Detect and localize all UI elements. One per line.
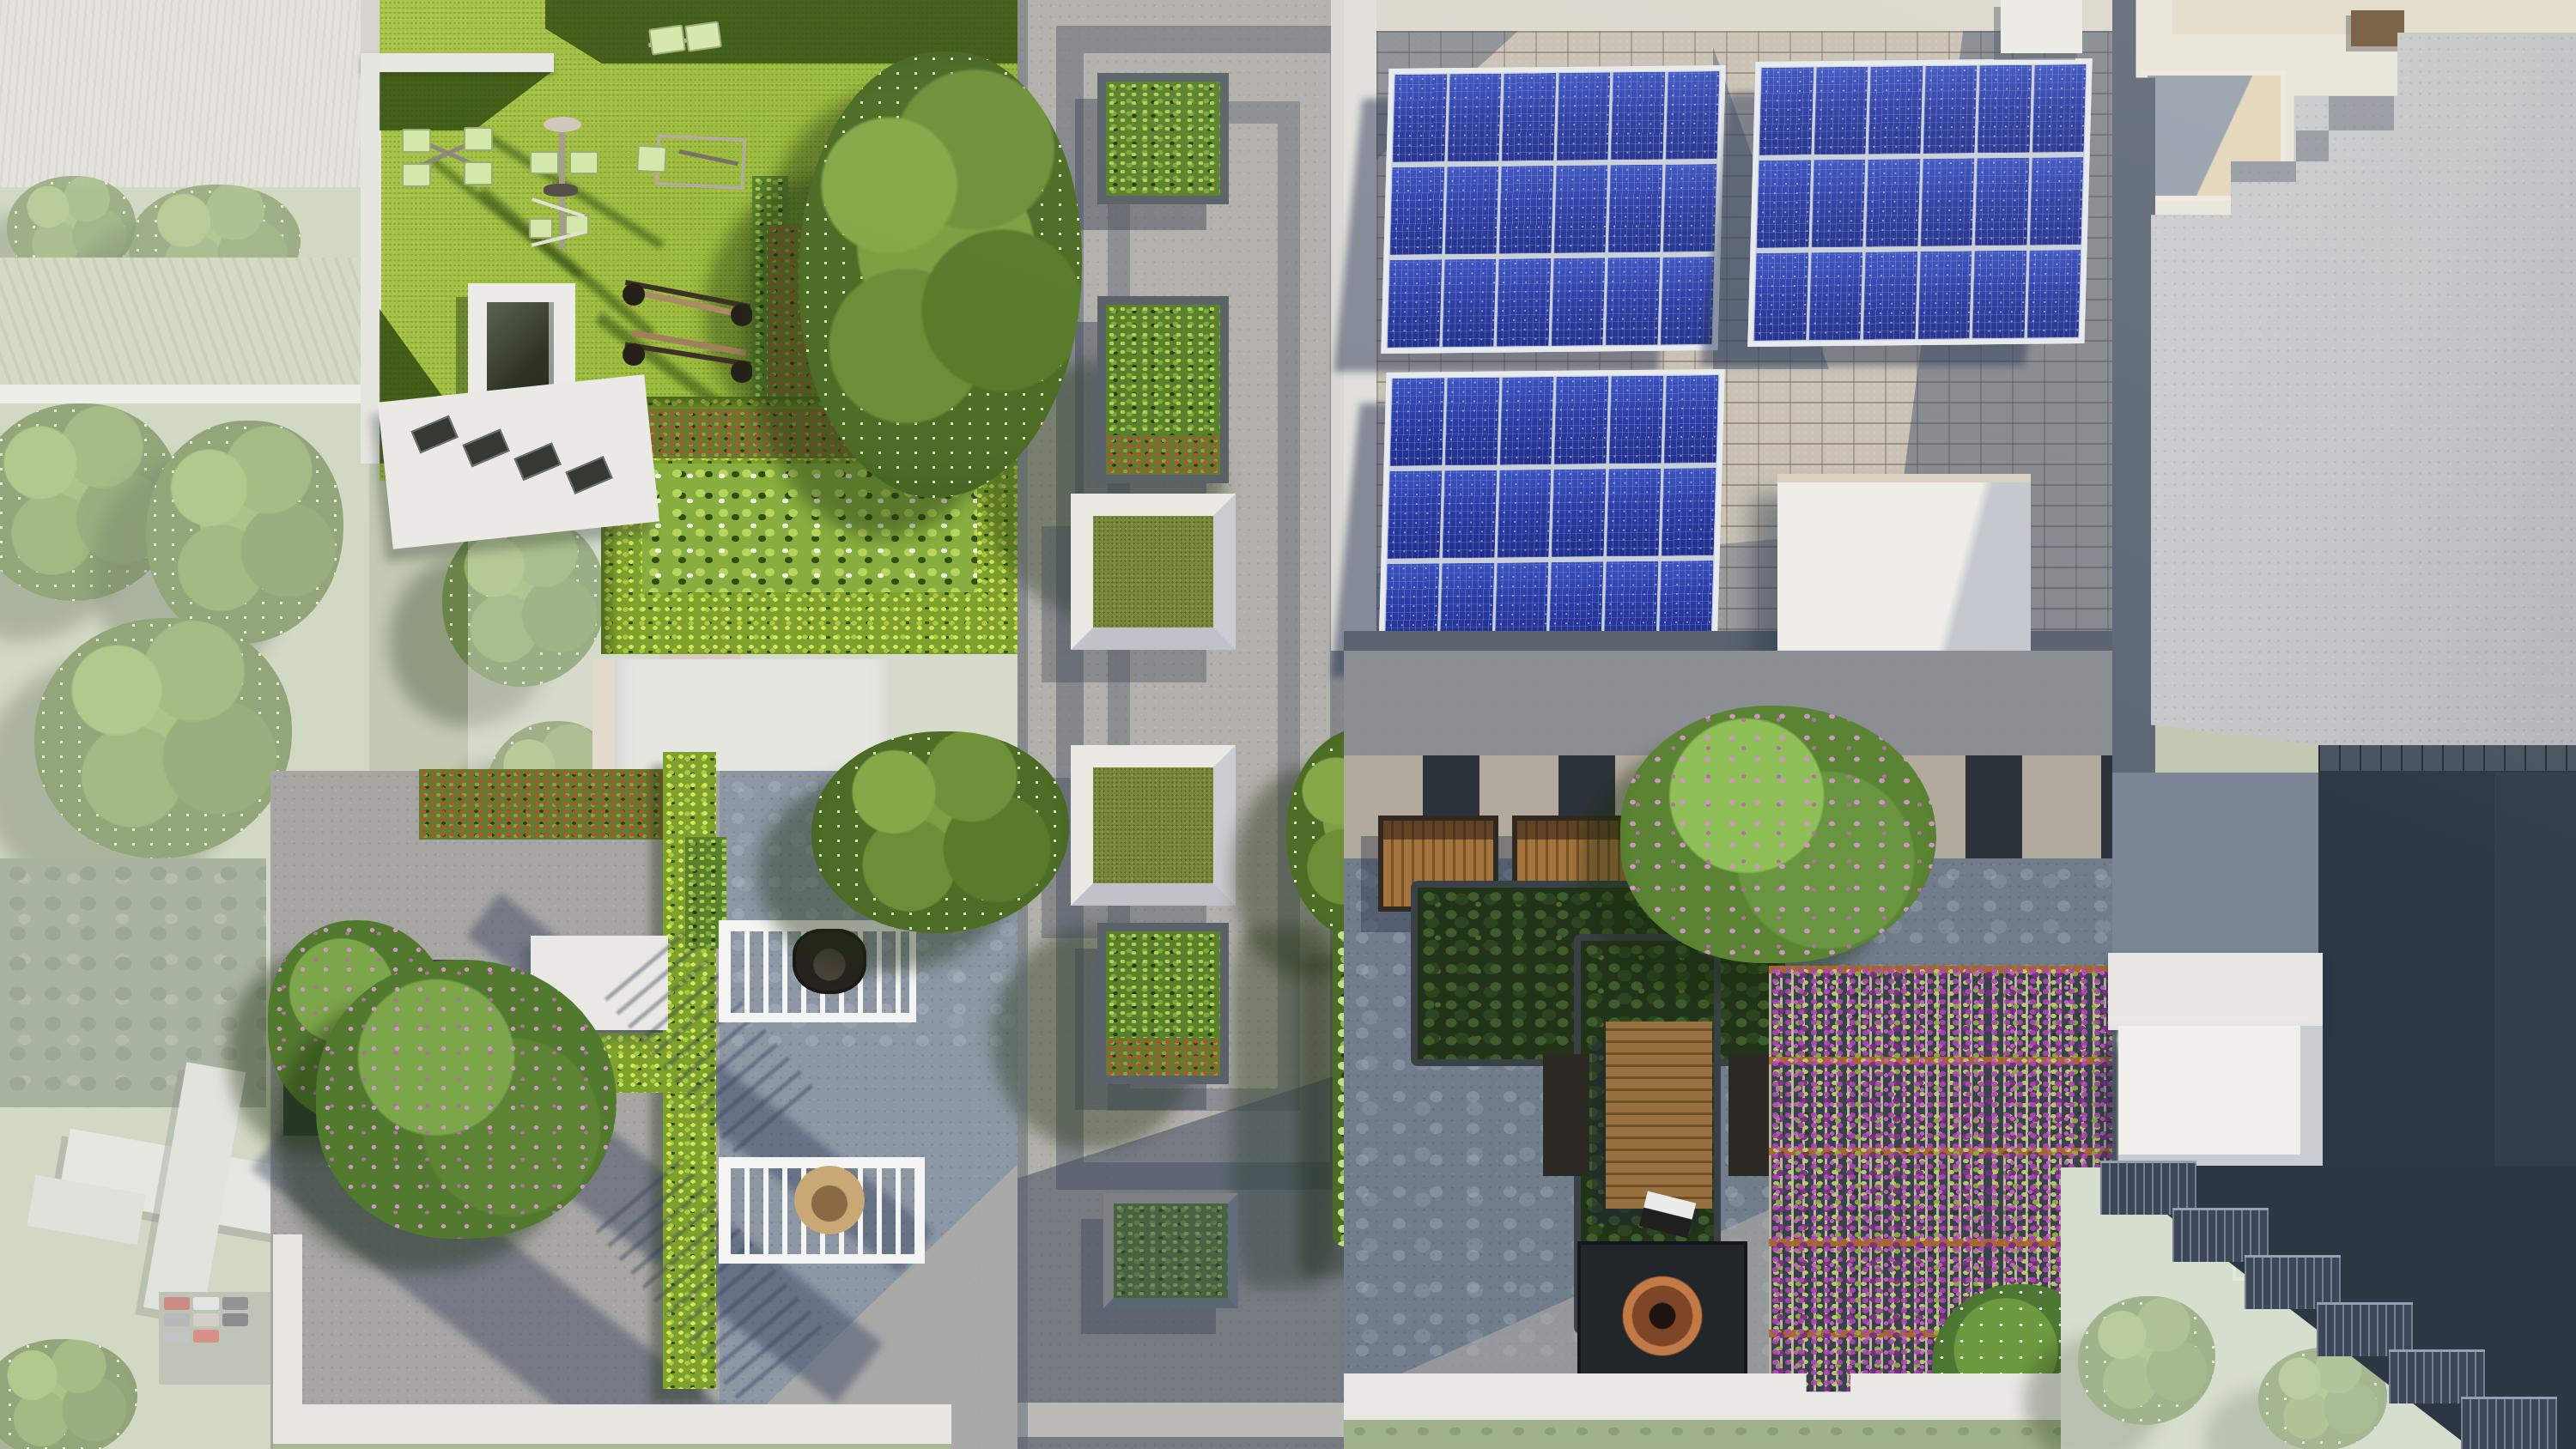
dining-bench-right xyxy=(1728,1054,1775,1176)
pad xyxy=(648,24,686,55)
solar-module xyxy=(1499,166,1553,254)
stepped-balcony xyxy=(2245,1255,2341,1309)
red-trim xyxy=(1106,435,1220,475)
solar-module xyxy=(1388,470,1443,559)
plant-room-roof-edge xyxy=(1777,474,2031,482)
gym-barbell-rack xyxy=(623,276,756,379)
gym-twister xyxy=(526,196,592,256)
ground-strip-south xyxy=(1344,1420,2078,1449)
skylight-walkway xyxy=(378,374,659,549)
solar-module xyxy=(1502,73,1556,161)
plates xyxy=(731,304,753,326)
gym-bench-station xyxy=(648,13,726,77)
copper-fire-bowl xyxy=(1622,1276,1703,1356)
planter-shrub-red xyxy=(1097,923,1229,1084)
gap-shadow-band xyxy=(2112,0,2155,777)
solar-module xyxy=(1390,378,1445,466)
solar-module xyxy=(1975,158,2029,246)
stepped-balconies xyxy=(2112,721,2576,1449)
planter-white-grass xyxy=(1071,494,1236,650)
solar-module xyxy=(1917,251,1971,339)
solar-module xyxy=(2026,250,2081,338)
pad xyxy=(402,129,431,153)
solar-module xyxy=(2029,157,2083,246)
solar-module xyxy=(1923,65,1977,154)
pad xyxy=(684,21,722,52)
solar-module xyxy=(1611,72,1665,161)
pad xyxy=(402,163,431,187)
social-pink-bush xyxy=(1620,706,1936,963)
east-lower xyxy=(2112,721,2576,1449)
solar-module xyxy=(1662,468,1716,556)
hedge-horizontal xyxy=(419,769,668,840)
social-terrace xyxy=(1344,651,2117,1449)
solar-module xyxy=(1662,164,1716,252)
scene xyxy=(0,0,2576,1449)
solar-module xyxy=(1609,376,1664,464)
plates xyxy=(623,343,645,366)
parapet-top xyxy=(361,53,554,72)
pad xyxy=(464,161,493,185)
planter-shrub xyxy=(1097,73,1229,204)
solar-module xyxy=(2032,64,2086,153)
solar-module xyxy=(1444,378,1499,466)
solar-module xyxy=(1556,72,1610,161)
base-plate xyxy=(544,184,578,197)
planter-white-grass xyxy=(1071,745,1236,906)
pad xyxy=(530,151,559,174)
pad xyxy=(569,151,598,174)
pad xyxy=(636,145,667,173)
social-parapet-south xyxy=(1344,1373,2078,1422)
solar-module xyxy=(1972,251,2026,339)
stepped-balcony xyxy=(2389,1349,2485,1404)
solar-module xyxy=(1447,74,1501,162)
planter-shrub-red xyxy=(1097,296,1229,483)
solar-module xyxy=(1757,160,1811,248)
solar-array-3 xyxy=(1378,369,1724,658)
solar-module xyxy=(1814,67,1868,155)
dining-table xyxy=(1606,1022,1712,1209)
solar-module xyxy=(1387,259,1441,348)
skylight xyxy=(411,415,459,454)
solar-module xyxy=(1499,377,1554,465)
wire-chair xyxy=(793,929,866,994)
solar-module xyxy=(1606,258,1660,346)
stepped-balcony xyxy=(2317,1302,2413,1356)
parapet-bottom xyxy=(273,1404,951,1449)
solar-module xyxy=(1497,470,1552,558)
skylight xyxy=(514,442,562,481)
stepped-balcony xyxy=(2100,1161,2196,1215)
skylight xyxy=(566,456,613,494)
pad xyxy=(529,218,553,239)
solar-module xyxy=(1664,375,1719,464)
pink-bush xyxy=(316,960,617,1239)
dining-bench-left xyxy=(1543,1054,1589,1176)
ground-strip-below xyxy=(273,1444,951,1449)
gym-multi-station xyxy=(402,122,495,189)
solar-module xyxy=(1868,66,1923,155)
solar-module xyxy=(1753,252,1807,341)
solar-module xyxy=(1811,160,1865,248)
solar-module xyxy=(1920,158,1974,246)
solar-module xyxy=(1808,252,1862,341)
plates xyxy=(623,283,645,306)
solar-module xyxy=(1393,74,1447,162)
frame-bar xyxy=(532,197,585,218)
solar-array-2 xyxy=(1747,58,2092,347)
solar-module xyxy=(1607,469,1662,557)
solar-module xyxy=(1553,165,1607,253)
stepped-balcony xyxy=(2461,1397,2557,1449)
plates xyxy=(731,361,753,383)
rattan-chair xyxy=(794,1166,865,1234)
post-cap xyxy=(544,117,581,132)
fire-pit-plinth xyxy=(1577,1241,1747,1392)
rooftop-white-box-small xyxy=(2001,0,2082,53)
east-building xyxy=(2112,0,2576,781)
solar-module xyxy=(1497,258,1551,347)
parapet-strip-bottom xyxy=(1018,1403,1344,1437)
solar-module xyxy=(1665,71,1719,160)
gym-chest-press xyxy=(635,128,744,191)
solar-module xyxy=(1442,259,1496,348)
solar-module xyxy=(1551,258,1605,346)
stepped-balcony xyxy=(2172,1208,2269,1262)
solar-module xyxy=(1863,252,1917,340)
solar-module xyxy=(1554,376,1609,464)
roof-utility-box xyxy=(2351,10,2404,46)
red-trim xyxy=(1106,1038,1220,1076)
skylight xyxy=(463,429,510,468)
solar-module xyxy=(1978,65,2032,154)
solar-module xyxy=(1866,159,1920,247)
pad xyxy=(464,127,493,151)
solar-module xyxy=(1390,167,1444,255)
solar-module xyxy=(1759,67,1814,155)
solar-array-1 xyxy=(1381,65,1725,354)
solar-module xyxy=(1608,165,1662,253)
solar-module xyxy=(1444,167,1498,255)
solar-module xyxy=(1442,470,1497,559)
solar-module xyxy=(1552,469,1607,557)
